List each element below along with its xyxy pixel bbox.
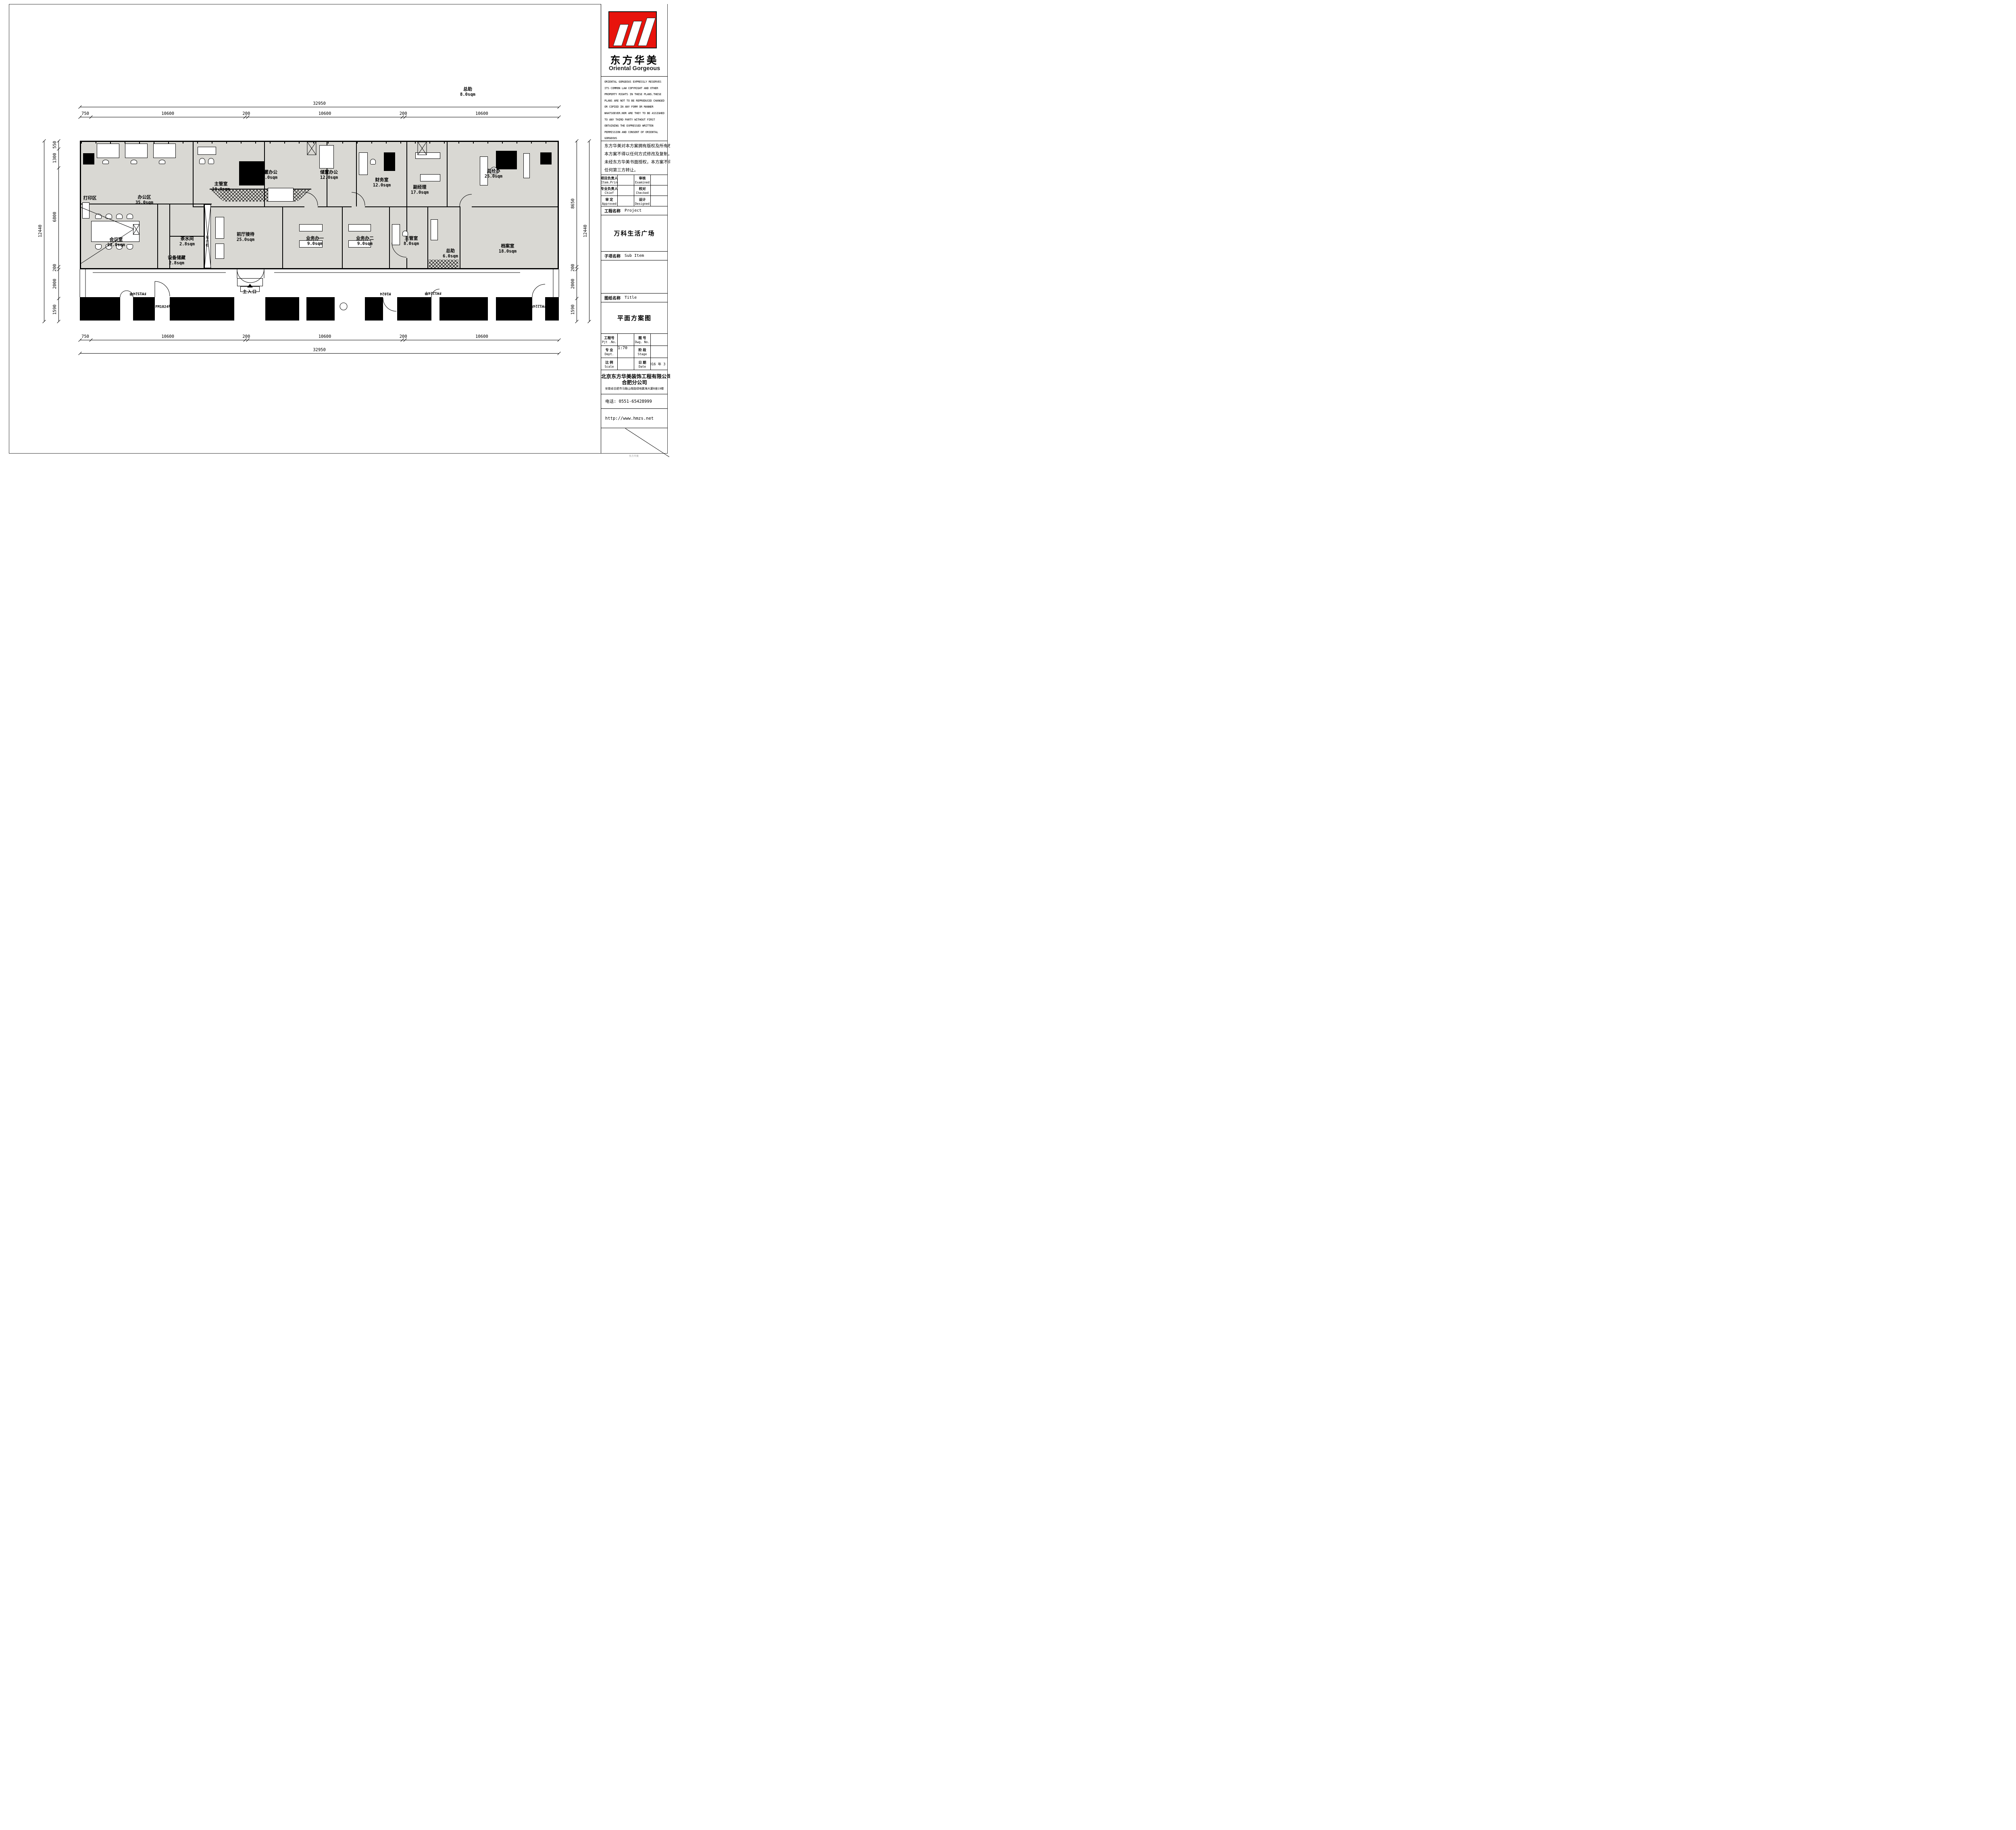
- table-row: 工程号Pjt .No.图 号Dwg. No.: [601, 334, 668, 346]
- dim-value: 32950: [313, 348, 326, 352]
- copyright-line: WHATSOEVER.NOR ARE THEY TO BE ASSIGHED: [604, 110, 668, 117]
- room-area: 22.0sqm: [107, 242, 125, 247]
- field-value-text: 1:70: [618, 346, 627, 350]
- field-label-cn: 审 定: [605, 197, 613, 202]
- cabinet: [268, 188, 294, 202]
- field-label-en: Checked: [636, 191, 649, 195]
- facade-wall: [397, 297, 431, 321]
- room-label: 档案室18.0sqm: [499, 244, 516, 254]
- dim-value: 550: [52, 141, 57, 148]
- dim-value: 32950: [313, 101, 326, 106]
- copyright-line: ITS COMMON LAW COPYRIGHT AND OTHER: [604, 85, 668, 92]
- field-label-cn: 专业负责人: [601, 186, 618, 191]
- room-label: 副经理17.0sqm: [411, 185, 429, 195]
- door-code-label: FM1024甲: [155, 304, 172, 309]
- room-area: 12.0sqm: [260, 175, 277, 180]
- dim-value: 2000: [571, 279, 575, 289]
- desk: [153, 144, 176, 158]
- chair: [159, 160, 165, 164]
- column: [540, 152, 552, 164]
- drawing-sheet: 主入口 打印区办公区35.0sqm主管室10.0sqm储置办公12.0sqm储置…: [0, 0, 670, 458]
- website-cell: http://www.hmzs.net: [601, 409, 668, 428]
- room-label: 设备储藏2.8sqm: [168, 256, 185, 266]
- room-label: 主管室10.0sqm: [212, 182, 230, 192]
- title-block: 东方华美 Oriental Gorgeous ORIENTAL GORGEOUS…: [601, 4, 667, 453]
- facade-wall: [545, 297, 559, 321]
- door-code-label: FM1224甲: [425, 291, 442, 296]
- room-name: 主管室: [212, 182, 230, 187]
- table-row: 专 业Dept.1:70阶 段Stage: [601, 346, 668, 358]
- facade-wall: [365, 297, 383, 321]
- room-label: 业务办一9.0sqm: [306, 236, 324, 246]
- dim-value: 750: [81, 334, 89, 339]
- company-name-line1: 北京东方华美装饰工程有限公司: [601, 374, 668, 380]
- dim-value: 200: [400, 334, 407, 339]
- room-label: 办公区35.0sqm: [135, 195, 153, 205]
- field-value: [651, 175, 668, 185]
- dim-value: 200: [400, 111, 407, 116]
- company-cell: 北京东方华美装饰工程有限公司 合肥分公司 安徽省合肥市马鞍山南路绿地赢海大厦B座…: [601, 370, 668, 394]
- room-name: 业务办一: [306, 236, 324, 242]
- chair: [402, 231, 408, 236]
- field-label: 设计Designed: [634, 196, 651, 206]
- chair: [102, 160, 109, 164]
- field-value-text: 2016 年 3 月: [651, 362, 668, 366]
- dim-value: 12440: [38, 225, 43, 237]
- room-area: 2.8sqm: [179, 242, 195, 246]
- dim-line: [577, 141, 577, 321]
- room-name: 财务室: [373, 178, 391, 183]
- facade-wall: [80, 297, 120, 321]
- room-label: 总助8.0sqm: [460, 87, 475, 97]
- table-row: 审 定Approved设计Designed: [601, 196, 668, 206]
- drawing-name-cell: 平面方案图: [601, 302, 668, 334]
- drawing-name: 平面方案图: [601, 302, 668, 333]
- cabinet: [319, 145, 334, 169]
- chair: [199, 158, 205, 164]
- field-value: [651, 346, 668, 358]
- field-label-cn: 审核: [639, 176, 646, 181]
- field-label-cn: 项目负责人: [601, 176, 618, 181]
- room-name: 会议室: [107, 237, 125, 243]
- desk: [392, 224, 400, 245]
- drawing-label-row: 图纸名称Title: [601, 294, 668, 302]
- door-code-label: M1024: [380, 291, 391, 296]
- printer: [82, 202, 90, 219]
- dim-value: 200: [242, 334, 250, 339]
- facade-wall: [170, 297, 210, 321]
- field-label-cn: 日 期: [638, 360, 646, 365]
- brand-name-cn: 东方华美: [601, 52, 668, 67]
- copyright-line: OBTAINING THE EXPRESSED WRITTEN: [604, 123, 668, 129]
- dim-value: 10600: [475, 111, 488, 116]
- dim-value: 10600: [475, 334, 488, 339]
- facade-wall: [439, 297, 488, 321]
- desk: [97, 144, 119, 158]
- copyright-line: TO ANY THIRD PARTY WITHOUT FIRST: [604, 117, 668, 123]
- room-label: 会议室22.0sqm: [107, 237, 125, 248]
- subitem-value: [601, 260, 668, 293]
- chair: [95, 214, 102, 219]
- wall: [447, 141, 448, 206]
- drawing-label-cn: 图纸名称: [604, 295, 621, 301]
- fixture-label: 展示柜: [205, 235, 210, 248]
- dim-line: [80, 353, 559, 354]
- field-label: 日 期Date: [634, 358, 651, 370]
- copyright-line: PROPERTY RIGHTS IN THESE PLANS.THESE: [604, 92, 668, 98]
- column: [496, 151, 517, 169]
- copyright-line: PERMISSION AND CONSENT OF ORIENTAL: [604, 129, 668, 136]
- column: [384, 152, 395, 171]
- wall: [356, 141, 357, 206]
- field-value: [618, 175, 634, 185]
- room-label: 总经办25.0sqm: [485, 169, 502, 179]
- rights-line: 东方华美对本方案拥有版权及所有权。: [604, 142, 668, 150]
- room-area: 12.0sqm: [320, 175, 338, 180]
- facade-wall: [210, 297, 234, 321]
- room-name: 主管室: [404, 236, 419, 242]
- cabinet-hatch: [429, 260, 458, 269]
- field-label: 图 号Dwg. No.: [634, 334, 651, 346]
- room-name: 副经理: [411, 185, 429, 190]
- room-name: 打印区: [83, 196, 97, 201]
- wall: [427, 206, 428, 269]
- chair: [370, 159, 376, 164]
- room-name: 前厅接待: [237, 232, 254, 237]
- room-label: 主管室8.0sqm: [404, 236, 419, 246]
- dim-line: [80, 340, 559, 340]
- field-label-en: Chief: [605, 191, 614, 195]
- door-code-label: FM1224甲: [529, 304, 546, 309]
- room-name: 总助: [460, 87, 475, 92]
- room-name: 茶水间: [179, 237, 195, 242]
- corner-cut-line: [625, 428, 669, 457]
- dim-value: 10600: [161, 111, 174, 116]
- project-label-cn: 工程名称: [604, 208, 621, 214]
- room-name: 总助: [443, 249, 458, 254]
- copyright-line: PLANS ARE NOT TO BE REPRODUCED CHANGED: [604, 98, 668, 104]
- dim-value: 10600: [319, 111, 331, 116]
- chair: [106, 214, 112, 219]
- dim-value: 1590: [571, 305, 575, 315]
- dim-value: 1300: [52, 153, 57, 163]
- entrance-text: 主入口: [243, 288, 257, 294]
- room-area: 9.0sqm: [356, 241, 374, 246]
- field-value: [618, 185, 634, 196]
- room-area: 2.8sqm: [168, 260, 185, 265]
- field-label: 阶 段Stage: [634, 346, 651, 358]
- dim-line: [44, 141, 44, 321]
- room-name: 储置办公: [320, 170, 338, 175]
- dim-value: 1590: [52, 305, 57, 315]
- chair: [127, 244, 133, 250]
- table-row: 专业负责人Chief校对Checked: [601, 185, 668, 196]
- room-label: 前厅接待25.0sqm: [237, 232, 254, 242]
- wall: [318, 206, 352, 207]
- room-name: 总经办: [485, 169, 502, 174]
- dim-value: 10600: [161, 334, 174, 339]
- room-area: 6.0sqm: [443, 254, 458, 258]
- wall: [460, 206, 460, 269]
- room-label: 业务办二9.0sqm: [356, 236, 374, 246]
- project-label-en: Project: [625, 208, 641, 213]
- facade-wall: [496, 297, 532, 321]
- copyright-line: ORIENTAL GORGEOUS EXPRESSLY RESERVES: [604, 79, 668, 85]
- project-name: 万科生活广场: [601, 215, 668, 251]
- dim-value: 10600: [319, 334, 331, 339]
- company-address: 安徽省合肥市马鞍山南路绿地赢海大厦B座19楼: [601, 387, 668, 391]
- room-name: 业务办二: [356, 236, 374, 242]
- dim-value: 200: [571, 264, 575, 272]
- room-name: 办公区: [135, 195, 153, 200]
- wall: [342, 206, 343, 269]
- room-label: 储置办公12.0sqm: [260, 170, 277, 180]
- field-label-cn: 工程号: [604, 335, 614, 340]
- fixture-label: 738: [142, 306, 146, 311]
- room-name: 设备储藏: [168, 256, 185, 261]
- field-label-en: Date: [639, 365, 646, 368]
- project-name-cell: 万科生活广场: [601, 215, 668, 252]
- field-label-en: Stage: [638, 352, 647, 356]
- project-label-row: 工程名称Project: [601, 206, 668, 215]
- desk: [125, 144, 148, 158]
- field-label-en: Pjt .No.: [602, 340, 616, 344]
- field-label-en: Scale: [605, 365, 614, 368]
- room-label: 财务室12.0sqm: [373, 178, 391, 188]
- copyright-line: OR COPIED IN ANY FORM OR MANNER: [604, 104, 668, 110]
- field-label-en: Dept.: [605, 352, 614, 356]
- copyright-notice: ORIENTAL GORGEOUS EXPRESSLY RESERVESITS …: [601, 77, 668, 141]
- chair: [208, 158, 214, 164]
- field-value: [618, 196, 634, 206]
- room-label: 总助6.0sqm: [443, 249, 458, 259]
- projector: [133, 224, 140, 235]
- dim-value: 200: [52, 264, 57, 272]
- wall: [157, 204, 158, 269]
- entrance-arrow-icon: [247, 284, 253, 287]
- company-name-line2: 合肥分公司: [601, 380, 668, 386]
- field-label-cn: 阶 段: [638, 348, 646, 352]
- rights-line: 任何第三方转让。: [604, 166, 668, 174]
- company-logo-icon: [608, 11, 657, 48]
- room-name: 档案室: [499, 244, 516, 249]
- wall: [472, 206, 559, 207]
- facade-wall: [306, 297, 335, 321]
- brand-name-en: Oriental Gorgeous: [601, 65, 668, 72]
- field-value: [651, 185, 668, 196]
- company-website: http://www.hmzs.net: [605, 416, 654, 421]
- wall: [406, 258, 407, 269]
- wall: [406, 141, 407, 242]
- dim-value: 8650: [571, 198, 575, 208]
- dim-value: 6800: [52, 212, 57, 222]
- field-value: [651, 334, 668, 346]
- subitem-value-cell: [601, 260, 668, 294]
- field-label: 专业负责人Chief: [601, 185, 618, 196]
- dim-value: 2000: [52, 279, 57, 289]
- field-value: 1:70: [618, 346, 634, 358]
- dim-value: 750: [81, 111, 89, 116]
- field-label-cn: 图 号: [638, 335, 646, 340]
- room-area: 25.0sqm: [237, 237, 254, 242]
- desk: [359, 152, 368, 175]
- field-value: 2016 年 3 月: [651, 358, 668, 370]
- room-label: 茶水间2.8sqm: [179, 237, 195, 247]
- north-window-ticks: [81, 142, 558, 144]
- wall: [389, 206, 390, 269]
- dim-line: [589, 141, 589, 321]
- field-label: 项目负责人Item.Prin: [601, 175, 618, 185]
- meta-table: 工程号Pjt .No.图 号Dwg. No.专 业Dept.1:70阶 段Sta…: [601, 334, 668, 370]
- field-label-cn: 校对: [639, 186, 646, 191]
- room-label: 打印区: [83, 196, 97, 201]
- desk: [198, 147, 216, 155]
- field-label-cn: 比 例: [605, 360, 613, 365]
- column: [83, 153, 94, 164]
- field-label: 审 定Approved: [601, 196, 618, 206]
- desk: [299, 224, 323, 231]
- phone-cell: 电话: 0551-65428999: [601, 394, 668, 409]
- wall: [282, 206, 283, 269]
- dim-value: 12440: [583, 225, 588, 237]
- rights-line: 未经东方华美书面授权，本方案不得向: [604, 158, 668, 166]
- subitem-label-cn: 子项名称: [604, 253, 621, 259]
- field-value: [618, 358, 634, 370]
- desk: [348, 224, 371, 231]
- field-label-en: Examined: [635, 181, 650, 184]
- subitem-label-en: Sub Item: [625, 254, 644, 258]
- dim-line: [80, 117, 559, 117]
- room-area: 35.0sqm: [135, 200, 153, 205]
- desk: [431, 219, 438, 240]
- main-entrance-label: 主入口: [243, 284, 257, 294]
- field-value: [618, 334, 634, 346]
- room-area: 12.0sqm: [373, 183, 391, 187]
- field-label-en: Dwg. No.: [635, 340, 650, 344]
- field-label-cn: 专 业: [605, 348, 613, 352]
- chair: [127, 214, 133, 219]
- rights-line: 本方案不得以任何方式修改及复制。: [604, 150, 668, 158]
- facade-wall: [265, 297, 299, 321]
- field-value: [651, 196, 668, 206]
- field-label: 审核Examined: [634, 175, 651, 185]
- room-area: 10.0sqm: [212, 187, 230, 192]
- logo-cell: 东方华美 Oriental Gorgeous: [601, 4, 668, 77]
- field-label-en: Designed: [635, 202, 650, 206]
- field-label: 校对Checked: [634, 185, 651, 196]
- wall: [365, 206, 460, 207]
- corner-watermark: 东方华美: [629, 454, 639, 458]
- field-label-cn: 设计: [639, 197, 646, 202]
- room-area: 25.0sqm: [485, 174, 502, 179]
- wall: [193, 141, 194, 206]
- room-area: 18.0sqm: [499, 249, 516, 254]
- room-area: 8.0sqm: [404, 241, 419, 246]
- door-code-label: FM1524甲: [129, 291, 146, 297]
- sofa: [523, 153, 530, 178]
- dim-line: [80, 107, 559, 107]
- chair: [131, 160, 137, 164]
- field-label: 比 例Scale: [601, 358, 618, 370]
- personnel-table: 项目负责人Item.Prin审核Examined专业负责人Chief校对Chec…: [601, 175, 668, 206]
- room-label: 储置办公12.0sqm: [320, 170, 338, 180]
- room-area: 9.0sqm: [306, 241, 324, 246]
- chair: [95, 244, 102, 250]
- rights-notice-cn: 东方华美对本方案拥有版权及所有权。本方案不得以任何方式修改及复制。未经东方华美书…: [601, 141, 668, 175]
- table-row: 项目负责人Item.Prin审核Examined: [601, 175, 668, 185]
- room-name: 储置办公: [260, 170, 277, 175]
- table-row: 比 例Scale日 期Date2016 年 3 月: [601, 358, 668, 370]
- chair: [116, 214, 123, 219]
- field-label-en: Approved: [602, 202, 616, 206]
- field-label: 工程号Pjt .No.: [601, 334, 618, 346]
- sofa: [215, 217, 224, 239]
- desk: [420, 174, 440, 181]
- field-label: 专 业Dept.: [601, 346, 618, 358]
- subitem-label-row: 子项名称Sub Item: [601, 252, 668, 260]
- room-area: 17.0sqm: [411, 190, 429, 195]
- room-area: 8.0sqm: [460, 92, 475, 97]
- field-label-en: Item.Prin: [601, 181, 617, 184]
- company-phone: 电话: 0551-65428999: [605, 398, 652, 404]
- sofa: [415, 152, 440, 159]
- dim-value: 200: [242, 111, 250, 116]
- drawing-label-en: Title: [625, 296, 637, 300]
- sofa: [215, 244, 224, 259]
